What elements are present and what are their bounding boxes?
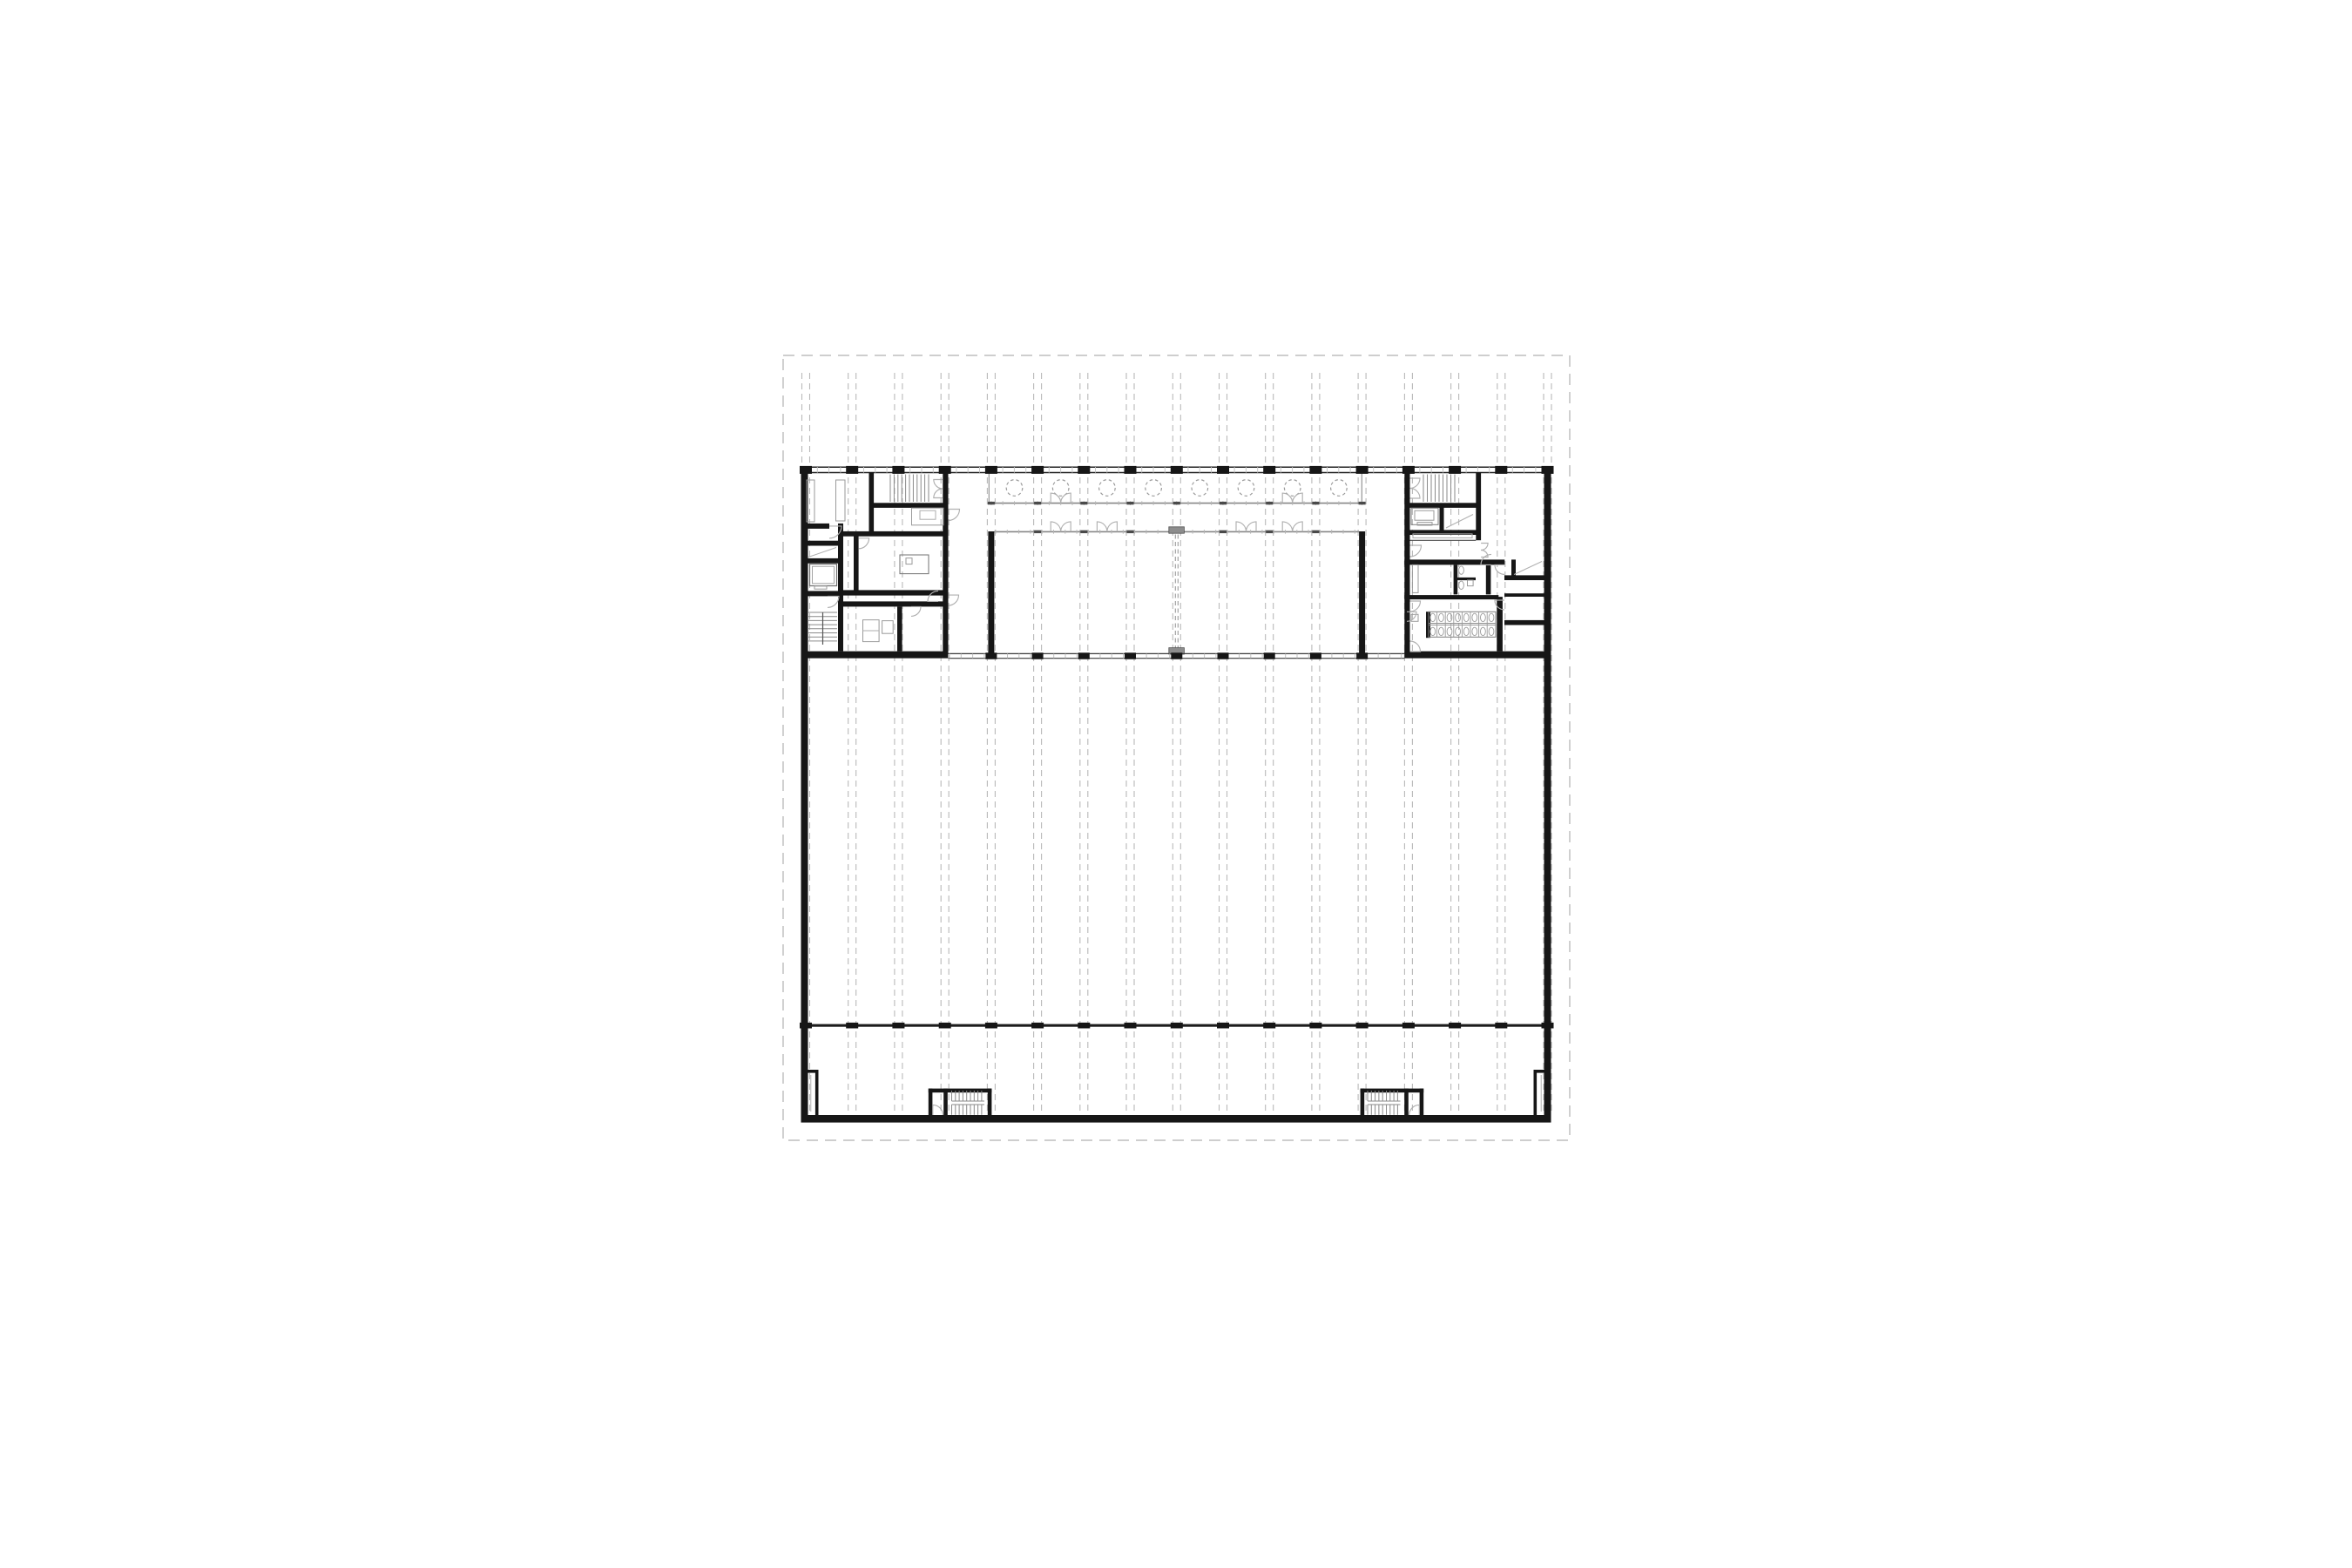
column <box>985 466 997 474</box>
stairs <box>808 475 1544 1118</box>
column <box>1171 652 1182 659</box>
double-door <box>1293 493 1303 504</box>
toilet <box>1472 613 1477 621</box>
toilet <box>1430 613 1436 621</box>
double-door <box>1097 522 1107 532</box>
toilet <box>1456 613 1461 621</box>
elevator-shaft <box>810 564 837 586</box>
toilet <box>1439 627 1444 635</box>
door-leaf-line <box>1514 562 1542 575</box>
column <box>1078 1023 1090 1029</box>
table <box>900 555 929 574</box>
interior-wall <box>897 606 902 651</box>
interior-wall <box>943 470 948 655</box>
axis-mark <box>1127 502 1134 504</box>
toilet <box>1456 627 1461 635</box>
axis-mark <box>988 502 995 504</box>
wall-west <box>801 467 808 1123</box>
axis-mark <box>1312 531 1319 533</box>
core-left-walls <box>802 470 949 655</box>
axis-mark <box>1220 502 1227 504</box>
interior-wall <box>1497 597 1503 652</box>
interior-wall <box>869 472 875 533</box>
wall-south <box>801 1115 1551 1123</box>
column <box>892 466 904 474</box>
axis-mark <box>1034 531 1041 533</box>
stairbox-wall <box>943 1089 948 1118</box>
column <box>1031 1023 1044 1029</box>
toilet <box>1430 627 1436 635</box>
double-door <box>1061 522 1071 532</box>
column <box>985 1023 997 1029</box>
corner-shaft-wall <box>1534 1070 1538 1115</box>
double-door <box>1051 522 1061 532</box>
corner-shaft-wall <box>815 1070 819 1115</box>
corner-shaft-wall <box>1534 1070 1544 1073</box>
toilet <box>1459 566 1464 574</box>
door-leaf-line <box>1446 515 1473 529</box>
doors <box>828 478 1504 1115</box>
door-swing <box>859 538 869 549</box>
column-circle <box>1238 480 1254 497</box>
elevator-car <box>813 566 835 584</box>
door-swing <box>949 595 959 605</box>
column <box>892 1023 904 1029</box>
column <box>1309 466 1321 474</box>
stairbox-wall <box>1420 1089 1424 1118</box>
interior-wall <box>843 531 948 537</box>
axis-mark <box>1127 531 1134 533</box>
double-door <box>1481 544 1488 551</box>
double-door <box>1293 522 1303 532</box>
column <box>1263 466 1275 474</box>
door-swing <box>828 596 839 607</box>
column <box>846 1023 858 1029</box>
door-swing <box>949 510 960 521</box>
column-circle <box>1284 480 1301 497</box>
sink <box>1468 580 1474 586</box>
column <box>1495 1023 1507 1029</box>
column <box>1310 652 1321 659</box>
toilet <box>1459 581 1464 589</box>
door-swing <box>1410 545 1422 557</box>
colonnade-band <box>988 473 1366 505</box>
interior-wall <box>874 503 949 508</box>
desk <box>882 621 894 634</box>
toilet <box>1447 627 1452 635</box>
toilet <box>1463 627 1469 635</box>
door-leaf-line <box>808 548 836 558</box>
double-door <box>1236 522 1247 532</box>
door-swing <box>1495 564 1504 574</box>
column-circle <box>1146 480 1162 497</box>
toilet <box>1489 613 1494 621</box>
toilet <box>1439 613 1444 621</box>
column <box>1495 466 1507 474</box>
toilet <box>1481 613 1486 621</box>
double-door <box>1061 493 1071 504</box>
column <box>1032 652 1044 659</box>
desk-top <box>920 510 936 519</box>
stairbox-wall <box>988 1089 992 1118</box>
interior-wall <box>802 558 843 564</box>
double-door <box>1051 493 1061 504</box>
interior-wall <box>1486 564 1491 594</box>
column <box>1449 466 1461 474</box>
axis-mark <box>1220 531 1227 533</box>
elevator-sill <box>814 586 827 589</box>
interior-wall <box>854 533 859 596</box>
floor-plan-drawing <box>0 0 2352 1568</box>
interior-wall <box>1504 575 1544 580</box>
toilet <box>1481 627 1486 635</box>
toilet <box>1472 627 1477 635</box>
stairbox-wall <box>1404 1089 1409 1118</box>
axis-mark <box>1173 502 1180 504</box>
axis-mark <box>1080 502 1087 504</box>
table-inset <box>906 558 912 564</box>
interior-wall <box>802 591 843 596</box>
column-circle <box>1331 480 1348 497</box>
stair-door <box>1409 1105 1420 1115</box>
column <box>1402 1023 1415 1029</box>
column <box>1217 1023 1229 1029</box>
core-right-south-wall <box>1404 652 1551 659</box>
door-swing <box>1410 641 1421 652</box>
column <box>1171 1023 1183 1029</box>
stairbox-wall <box>929 1089 933 1118</box>
interior-wall <box>1504 593 1544 597</box>
column-circle <box>1099 480 1116 497</box>
corner-shaft-wall <box>808 1070 819 1073</box>
column <box>939 1023 951 1029</box>
floor-lines <box>800 652 1554 1028</box>
axis-mark <box>1266 531 1273 533</box>
column <box>1449 1023 1461 1029</box>
core-left-south-wall <box>801 652 949 659</box>
partition-pocket <box>1169 527 1185 533</box>
double-door <box>1410 478 1421 489</box>
monitor <box>1415 510 1434 520</box>
column <box>1218 652 1229 659</box>
column <box>985 652 997 659</box>
column-circle <box>1052 480 1069 497</box>
door-swing <box>911 606 921 616</box>
toilet <box>1489 627 1494 635</box>
double-door <box>1282 493 1293 504</box>
axis-mark <box>1312 502 1319 504</box>
column <box>1309 1023 1321 1029</box>
column <box>846 466 858 474</box>
shelf <box>836 480 846 521</box>
interior-wall <box>838 601 948 606</box>
column <box>1263 1023 1275 1029</box>
column <box>1125 466 1137 474</box>
interior-wall <box>802 524 829 529</box>
interior-wall <box>802 541 843 546</box>
axis-mark <box>1080 531 1087 533</box>
column <box>1125 1023 1137 1029</box>
interior-wall <box>1404 559 1504 564</box>
shelf <box>1412 564 1418 592</box>
double-door <box>1282 522 1293 532</box>
axis-mark <box>1359 502 1366 504</box>
exhibition-hall <box>988 527 1365 658</box>
stairbox-wall <box>1361 1089 1424 1093</box>
double-door <box>1247 522 1257 532</box>
column <box>1264 652 1275 659</box>
axis-mark <box>1034 502 1041 504</box>
door-swing <box>1410 601 1421 612</box>
column <box>1078 466 1090 474</box>
column <box>1031 466 1044 474</box>
interior-wall <box>1504 620 1544 625</box>
axis-mark <box>1266 502 1273 504</box>
double-door <box>1410 489 1421 499</box>
column <box>1125 652 1136 659</box>
stairbox-wall <box>929 1089 992 1093</box>
column <box>1356 1023 1369 1029</box>
column <box>1217 466 1229 474</box>
column <box>1356 466 1369 474</box>
wall-east <box>1544 467 1551 1123</box>
stairbox-wall <box>1361 1089 1365 1118</box>
floor-plan-page <box>0 0 2352 1568</box>
hall-wall-right <box>1359 531 1365 658</box>
interior-wall <box>1440 506 1444 531</box>
column <box>1356 652 1368 659</box>
interior-wall <box>1404 595 1498 599</box>
column-circle <box>1192 480 1208 497</box>
interior-wall <box>1476 472 1481 540</box>
double-door <box>1481 551 1488 558</box>
column-circle <box>1006 480 1023 497</box>
column <box>1171 466 1183 474</box>
hall-wall-left <box>988 531 994 658</box>
column <box>1078 652 1090 659</box>
double-door <box>1107 522 1118 532</box>
toilet <box>1463 613 1469 621</box>
